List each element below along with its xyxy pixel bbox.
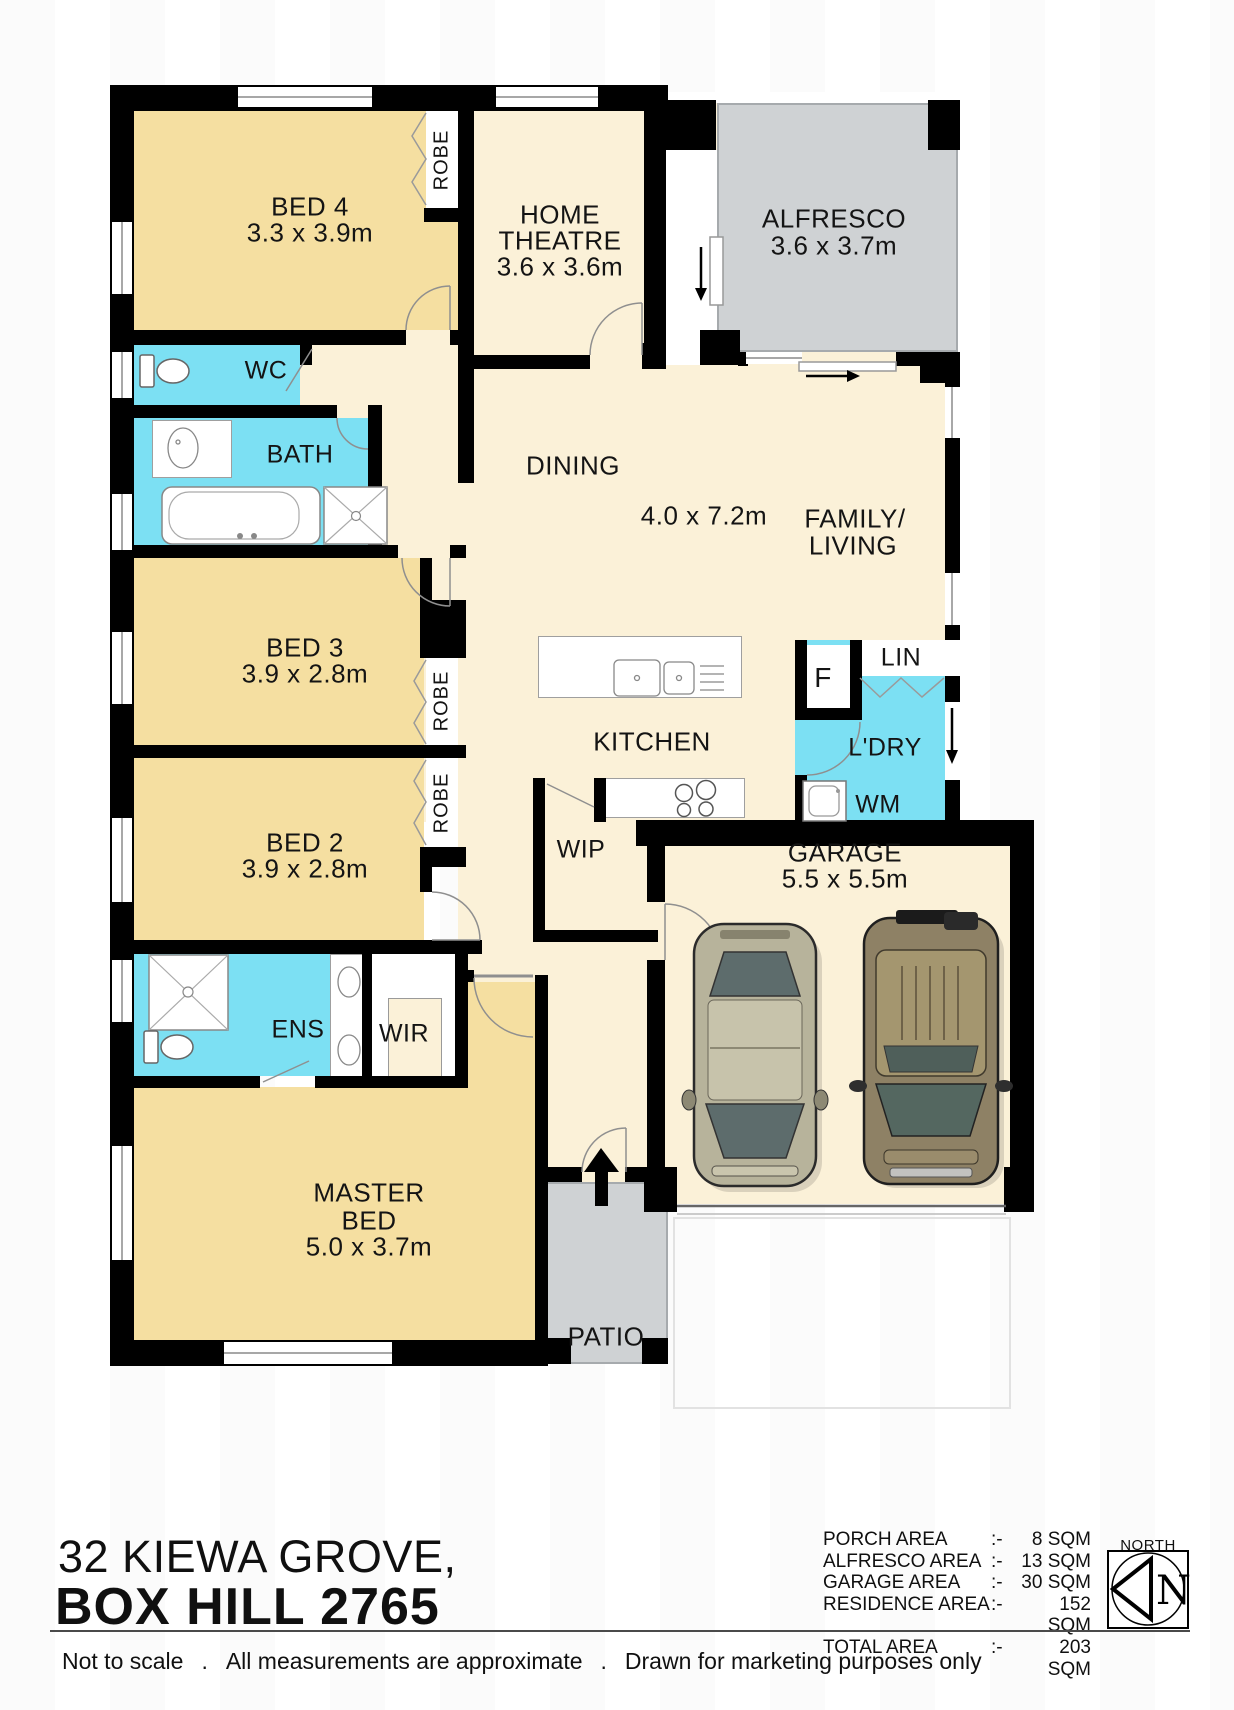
wall [450, 545, 466, 558]
room-label-wip: WIP [557, 836, 606, 865]
wall [462, 355, 590, 369]
wall [533, 778, 545, 942]
area-label: GARAGE AREA [823, 1572, 991, 1594]
robe-label: ROBE [431, 130, 454, 191]
kitchen-bench [605, 778, 745, 818]
wall [362, 952, 372, 1076]
area-row-alfresco: ALFRESCO AREA :- 13 SQM [823, 1551, 1091, 1573]
wall [945, 780, 960, 822]
wall [110, 85, 134, 1366]
laundry-exterior-door [946, 704, 959, 778]
area-separator: :- [991, 1572, 1013, 1594]
wall [110, 940, 482, 954]
wall [1004, 1167, 1034, 1212]
room-label-dining: DINING [526, 451, 620, 482]
room-label-ens: ENS [272, 1016, 325, 1045]
wall [642, 343, 666, 369]
wall [420, 867, 432, 892]
wall [420, 558, 432, 600]
disclaimer-text: Not to scale.All measurements are approx… [62, 1648, 982, 1675]
wall [455, 940, 468, 1080]
wall [644, 85, 666, 343]
north-letter: N [1156, 1568, 1191, 1614]
wall [110, 85, 668, 111]
wall [594, 778, 606, 822]
wall [535, 975, 548, 1366]
wall [458, 85, 474, 483]
wall [625, 1167, 647, 1182]
area-label: PORCH AREA [823, 1529, 991, 1551]
disclaimer-part-2: All measurements are approximate [226, 1648, 583, 1674]
address-line-1: 32 KIEWA GROVE, [58, 1531, 456, 1583]
alfresco-post [928, 100, 960, 150]
area-separator: :- [991, 1637, 1013, 1680]
wall [647, 846, 665, 902]
alfresco-post [666, 100, 716, 150]
wall [315, 1076, 362, 1088]
wall [533, 930, 658, 942]
room-label-patio: PATIO [568, 1322, 645, 1353]
north-label: NORTH [1120, 1537, 1176, 1554]
patio-post [642, 1338, 668, 1364]
wall [795, 775, 807, 820]
wall [945, 676, 960, 702]
floor-garage [648, 846, 1010, 1204]
area-value: 203 SQM [1013, 1637, 1091, 1680]
wall [647, 960, 665, 1170]
alfresco-post [700, 330, 740, 365]
wall [738, 352, 748, 366]
address-line-2: BOX HILL 2765 [55, 1577, 440, 1637]
wall [644, 1167, 677, 1212]
room-ens-floor [134, 952, 362, 1076]
robe-label: ROBE [431, 671, 454, 732]
robe-label: ROBE [431, 773, 454, 834]
room-dims-theatre: 3.6 x 3.6m [497, 252, 623, 283]
room-dims-garage: 5.5 x 5.5m [782, 864, 908, 895]
area-separator: :- [991, 1529, 1013, 1551]
area-value: 8 SQM [1013, 1529, 1091, 1551]
wall [945, 438, 960, 573]
area-row-porch: PORCH AREA :- 8 SQM [823, 1529, 1091, 1551]
room-label-kitchen: KITCHEN [593, 727, 711, 758]
wall [1010, 820, 1034, 1212]
area-label: ALFRESCO AREA [823, 1551, 991, 1573]
room-label-wc: WC [245, 357, 288, 386]
room-dims-openplan: 4.0 x 7.2m [641, 501, 767, 532]
room-label-laundry: L'DRY [848, 734, 922, 763]
garage-door [674, 1206, 1010, 1408]
wall [300, 345, 312, 365]
wall [110, 405, 337, 418]
room-label-family-2: LIVING [809, 531, 897, 562]
room-label-bath: BATH [267, 441, 334, 470]
wall [110, 1340, 538, 1366]
footer-divider [50, 1630, 1190, 1632]
wall [420, 600, 466, 658]
room-dims-alfresco: 3.6 x 3.7m [771, 231, 897, 262]
room-master-floor [134, 1087, 535, 1340]
disclaimer-part-1: Not to scale [62, 1648, 183, 1674]
wall [110, 330, 406, 345]
area-value: 30 SQM [1013, 1572, 1091, 1594]
north-arrow-icon: N [1108, 1551, 1191, 1628]
area-row-garage: GARAGE AREA :- 30 SQM [823, 1572, 1091, 1594]
disclaimer-dot: . [601, 1648, 607, 1675]
wall [362, 1076, 468, 1088]
label-linen: LIN [881, 644, 921, 673]
wall [795, 708, 852, 720]
room-dims-master: 5.0 x 3.7m [306, 1232, 432, 1263]
alfresco-post [920, 352, 960, 383]
wall [420, 847, 466, 867]
kitchen-island [538, 636, 742, 698]
room-dims-bed3: 3.9 x 2.8m [242, 659, 368, 690]
wall [896, 352, 922, 366]
disclaimer-part-3: Drawn for marketing purposes only [625, 1648, 982, 1674]
label-fridge: F [814, 662, 832, 694]
wall [110, 1076, 260, 1088]
room-dims-bed2: 3.9 x 2.8m [242, 854, 368, 885]
wall [368, 405, 382, 545]
wall [110, 745, 466, 758]
bath-vanity [152, 420, 232, 478]
room-dims-bed4: 3.3 x 3.9m [247, 218, 373, 249]
wall [424, 208, 466, 222]
area-separator: :- [991, 1551, 1013, 1573]
label-wm: WM [855, 791, 900, 820]
wall [945, 625, 960, 640]
room-master-vestibule [468, 982, 535, 1087]
room-label-wir: WIR [379, 1020, 429, 1049]
wall [450, 330, 474, 345]
disclaimer-dot: . [201, 1648, 207, 1675]
wall [110, 545, 398, 558]
area-value: 13 SQM [1013, 1551, 1091, 1573]
floor-plan-page: { "address": { "line1": "32 KIEWA GROVE,… [0, 0, 1234, 1710]
room-label-master-1: MASTER [313, 1178, 424, 1209]
wall [548, 1167, 582, 1182]
wall [455, 970, 474, 982]
